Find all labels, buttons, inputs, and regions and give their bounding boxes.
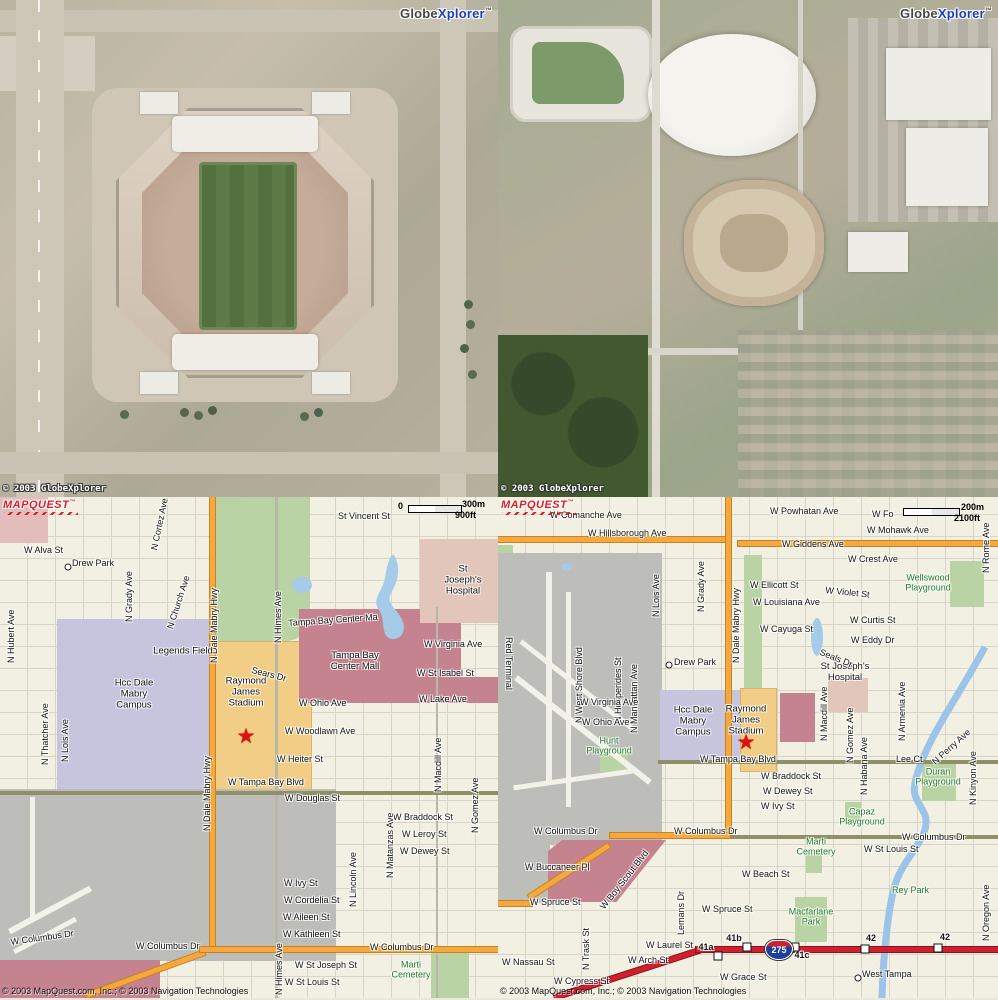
- street-label: W Cordelia St: [284, 895, 340, 905]
- street-label: N Church Ave: [165, 574, 192, 630]
- logo-text: MAPQUEST: [3, 499, 69, 511]
- stadium-roof-north: [172, 116, 318, 152]
- park-label: Macfarlane Park: [789, 907, 834, 928]
- street-label: W St Isabel St: [417, 668, 474, 678]
- street-label: N Matanzas Ave: [385, 813, 395, 878]
- mapquest-logo: MAPQUEST™: [501, 499, 574, 511]
- stadium-roof-south: [172, 334, 318, 370]
- exit-number: 41b: [726, 933, 742, 943]
- park-label: Duran Playground: [915, 767, 961, 788]
- street-label: W Columbus Dr: [674, 826, 738, 836]
- copyright-text: © 2003 GlobeXplorer: [501, 484, 604, 494]
- tree-cluster: [180, 408, 189, 417]
- park-label: Marti Cemetery: [796, 837, 835, 858]
- street-label: Drew Park: [72, 558, 114, 568]
- exit-number: 42: [940, 932, 950, 942]
- street-label: W Ohio Ave: [299, 698, 346, 708]
- street-label: W Leroy St: [402, 829, 447, 839]
- place-label: Hcc Dale Mabry Campus: [115, 679, 154, 712]
- copyright-text: © 2003 MapQuest.com, Inc.; © 2003 Naviga…: [2, 986, 248, 996]
- park-label: Rey Park: [892, 885, 929, 895]
- street-label: W Nassau St: [502, 957, 555, 967]
- street-label: W Columbus Dr: [902, 832, 966, 842]
- street-label: W Cypress St: [554, 976, 609, 986]
- street-label: W Ivy St: [761, 801, 795, 811]
- place-dot: [65, 564, 72, 571]
- place-dot: [855, 975, 862, 982]
- street-label: N Gomez Ave: [845, 708, 855, 763]
- street-label: N Macdill Ave: [819, 687, 829, 741]
- street-label: N Armenia Ave: [897, 682, 907, 741]
- street-label: W Laurel St: [646, 940, 693, 950]
- street-label: Drew Park: [674, 657, 716, 667]
- street-label: W Dewey St: [763, 786, 813, 796]
- trademark-symbol: ™: [985, 8, 992, 15]
- stadium-pavilion: [140, 372, 178, 394]
- street-label: N Kinyon Ave: [968, 751, 978, 805]
- copyright-text: © 2003 GlobeXplorer: [3, 484, 106, 494]
- trademark-symbol: ™: [567, 499, 574, 505]
- mall-building: [906, 128, 988, 206]
- street-label: Lemans Dr: [676, 891, 686, 935]
- street-label: W Kathleen St: [283, 929, 341, 939]
- place-dot: [666, 662, 673, 669]
- football-field: [199, 162, 297, 330]
- street-label: W Violet St: [825, 585, 870, 600]
- globexplorer-logo: GlobeXplorer™: [900, 6, 992, 21]
- tree-cluster: [464, 300, 473, 309]
- street-label: W Curtis St: [850, 615, 896, 625]
- logo-text: Globe: [900, 6, 938, 21]
- large-white-roof-building: [648, 34, 816, 156]
- logo-underline: [502, 512, 576, 515]
- park-label: Hunt Playground: [586, 736, 632, 757]
- street-label: W Virginia Ave: [580, 697, 638, 707]
- logo-text: MAPQUEST: [501, 499, 567, 511]
- exit-number: 41a: [698, 942, 713, 952]
- logo-text: Xplorer: [438, 6, 485, 21]
- street-label: W Spruce St: [702, 904, 753, 914]
- road-vertical: [652, 0, 660, 497]
- street-label: W Crest Ave: [848, 554, 898, 564]
- street-label: W St Louis St: [285, 977, 340, 987]
- street-label: W Grace St: [720, 972, 767, 982]
- street-label: N Hesperides St: [613, 657, 623, 723]
- baseball-field: [532, 42, 624, 104]
- street-label: N Hubert Ave: [6, 610, 16, 663]
- street-label: Lee Ct: [896, 754, 923, 764]
- place-label: St Joseph's Hospital: [444, 565, 481, 598]
- street-label: W Ellicott St: [750, 580, 799, 590]
- street-label: W Alva St: [24, 545, 63, 555]
- street-label: West Tampa: [862, 969, 912, 979]
- street-label: W Boy Scout Blvd: [598, 848, 650, 911]
- exit-marker: [743, 943, 752, 952]
- street-label: N Dale Mabry Hwy: [731, 588, 741, 663]
- street-label: W Spruce St: [530, 897, 581, 907]
- aerial-photo-stadium-wide[interactable]: GlobeXplorer™ © 2003 GlobeXplorer: [498, 0, 998, 497]
- street-label: W Virginia Ave: [424, 639, 482, 649]
- street-label: W Louisiana Ave: [753, 597, 820, 607]
- street-label: W Columbus Dr: [136, 941, 200, 951]
- street-label: W Dewey St: [400, 846, 450, 856]
- place-label: Tampa Bay Center Mall: [331, 651, 380, 673]
- logo-text: Globe: [400, 6, 438, 21]
- street-label: N Lois Ave: [60, 719, 70, 762]
- street-label: W Beach St: [742, 869, 790, 879]
- street-label: W Woodlawn Ave: [285, 726, 355, 736]
- road-horizontal-bottom: [0, 452, 498, 474]
- street-label: Tampa Bay Center Ma: [288, 612, 378, 629]
- street-label: W Columbus Dr: [534, 826, 598, 836]
- scale-zero: 0: [398, 501, 403, 511]
- street-label: W Braddock St: [761, 771, 821, 781]
- street-label-layer: W Comanche AveW Hillsborough AveW Powhat…: [498, 497, 998, 998]
- street-label: W Tampa Bay Blvd: [700, 754, 776, 764]
- road-vertical-left: [16, 0, 64, 497]
- copyright-text: © 2003 MapQuest.com, Inc.; © 2003 Naviga…: [500, 986, 746, 996]
- street-label-layer: St Vincent StW Alva StDrew ParkN Cortez …: [0, 497, 498, 998]
- street-label: N Habana Ave: [859, 737, 869, 795]
- street-label: W Giddens Ave: [782, 539, 844, 549]
- street-label: W St Louis St: [864, 844, 919, 854]
- street-label: W Buccaneer Pl: [525, 862, 590, 872]
- street-label: N Oregon Ave: [981, 885, 991, 941]
- road-vertical-right: [440, 0, 466, 497]
- street-label: N Himes Ave: [273, 591, 283, 643]
- street-label: N Lois Ave: [651, 574, 661, 617]
- street-label: W Ivy St: [284, 878, 318, 888]
- screenshot-canvas: GlobeXplorer™ © 2003 GlobeXplorer GlobeX…: [0, 0, 998, 1000]
- trademark-symbol: ™: [485, 8, 492, 15]
- location-star-marker: ★: [237, 725, 256, 749]
- street-label: N Trask St: [581, 928, 591, 970]
- mapquest-map-zoomed-in[interactable]: St Vincent StW Alva StDrew ParkN Cortez …: [0, 497, 498, 998]
- street-label: W Cayuga St: [760, 624, 813, 634]
- street-label: W Heiter St: [277, 754, 323, 764]
- street-label: W Eddy Dr: [851, 635, 895, 645]
- exit-number: 42: [866, 933, 876, 943]
- stadium-pavilion: [312, 92, 350, 114]
- scale-imperial: 2100ft: [954, 513, 980, 523]
- street-label: W Braddock St: [393, 812, 453, 822]
- street-label: St Vincent St: [338, 511, 390, 521]
- park-label: Capaz Playground: [839, 807, 885, 828]
- exit-marker: [714, 952, 723, 961]
- aerial-photo-stadium-closeup[interactable]: GlobeXplorer™ © 2003 GlobeXplorer: [0, 0, 498, 497]
- street-label: N Gomez Ave: [470, 778, 480, 833]
- street-label: W Columbus Dr: [370, 942, 434, 952]
- park-label: Marti Cemetery: [391, 960, 430, 981]
- street-label: N Macdill Ave: [433, 738, 443, 792]
- place-label: Raymond James Stadium: [226, 677, 267, 710]
- trademark-symbol: ™: [69, 499, 76, 505]
- mapquest-map-zoomed-out[interactable]: W Comanche AveW Hillsborough AveW Powhat…: [498, 497, 998, 998]
- street-label: N Perry Ave: [930, 727, 972, 767]
- place-label: Legends Field: [153, 647, 213, 658]
- mall-building: [886, 48, 991, 120]
- street-label: W Ohio Ave: [582, 717, 629, 727]
- street-label: W Hillsborough Ave: [588, 528, 666, 538]
- scale-metric: 300m: [462, 499, 485, 509]
- street-label: N Thatcher Ave: [40, 703, 50, 765]
- scale-metric: 200m: [961, 502, 984, 512]
- globexplorer-logo: GlobeXplorer™: [400, 6, 492, 21]
- place-label: Hcc Dale Mabry Campus: [674, 706, 713, 739]
- road-lane-line: [38, 0, 40, 497]
- residential-grid: [738, 330, 998, 497]
- building: [848, 232, 908, 272]
- street-label: W Arch St: [628, 955, 668, 965]
- street-label: W St Joseph St: [295, 960, 357, 970]
- stadium-pavilion: [140, 92, 178, 114]
- street-label: N Grady Ave: [124, 571, 134, 622]
- forest-area: [498, 335, 648, 497]
- street-label: W Tampa Bay Blvd: [228, 777, 304, 787]
- street-label: N West Shore Blvd: [574, 647, 584, 723]
- logo-underline: [4, 512, 78, 515]
- location-star-marker: ★: [737, 731, 756, 755]
- street-label: W Mohawk Ave: [867, 525, 929, 535]
- street-label: N Dale Mabry Hwy: [202, 756, 212, 831]
- scale-imperial: 900ft: [455, 510, 476, 520]
- exit-marker: [861, 945, 870, 954]
- street-label: N Grady Ave: [696, 561, 706, 612]
- street-label: N Rome Ave: [981, 523, 991, 573]
- street-label: W Aileen St: [283, 912, 330, 922]
- street-label: Red Terminal: [504, 637, 514, 690]
- street-label: W Lake Ave: [419, 694, 467, 704]
- stadium-pavilion: [312, 372, 350, 394]
- street-label: W Powhatan Ave: [770, 506, 838, 516]
- street-label: W Columbus Dr: [10, 928, 74, 947]
- street-label: N Cortez Ave: [149, 497, 170, 551]
- mapquest-logo: MAPQUEST™: [3, 499, 76, 511]
- street-label: N Himes Ave: [274, 943, 284, 995]
- park-label: Wellswood Playground: [905, 573, 951, 594]
- stadium-construction-core: [720, 214, 788, 272]
- exit-marker: [934, 944, 943, 953]
- logo-text: Xplorer: [938, 6, 985, 21]
- street-label: W Fo: [872, 509, 894, 519]
- street-label: W Douglas St: [285, 793, 340, 803]
- street-label: N Lincoln Ave: [348, 852, 358, 907]
